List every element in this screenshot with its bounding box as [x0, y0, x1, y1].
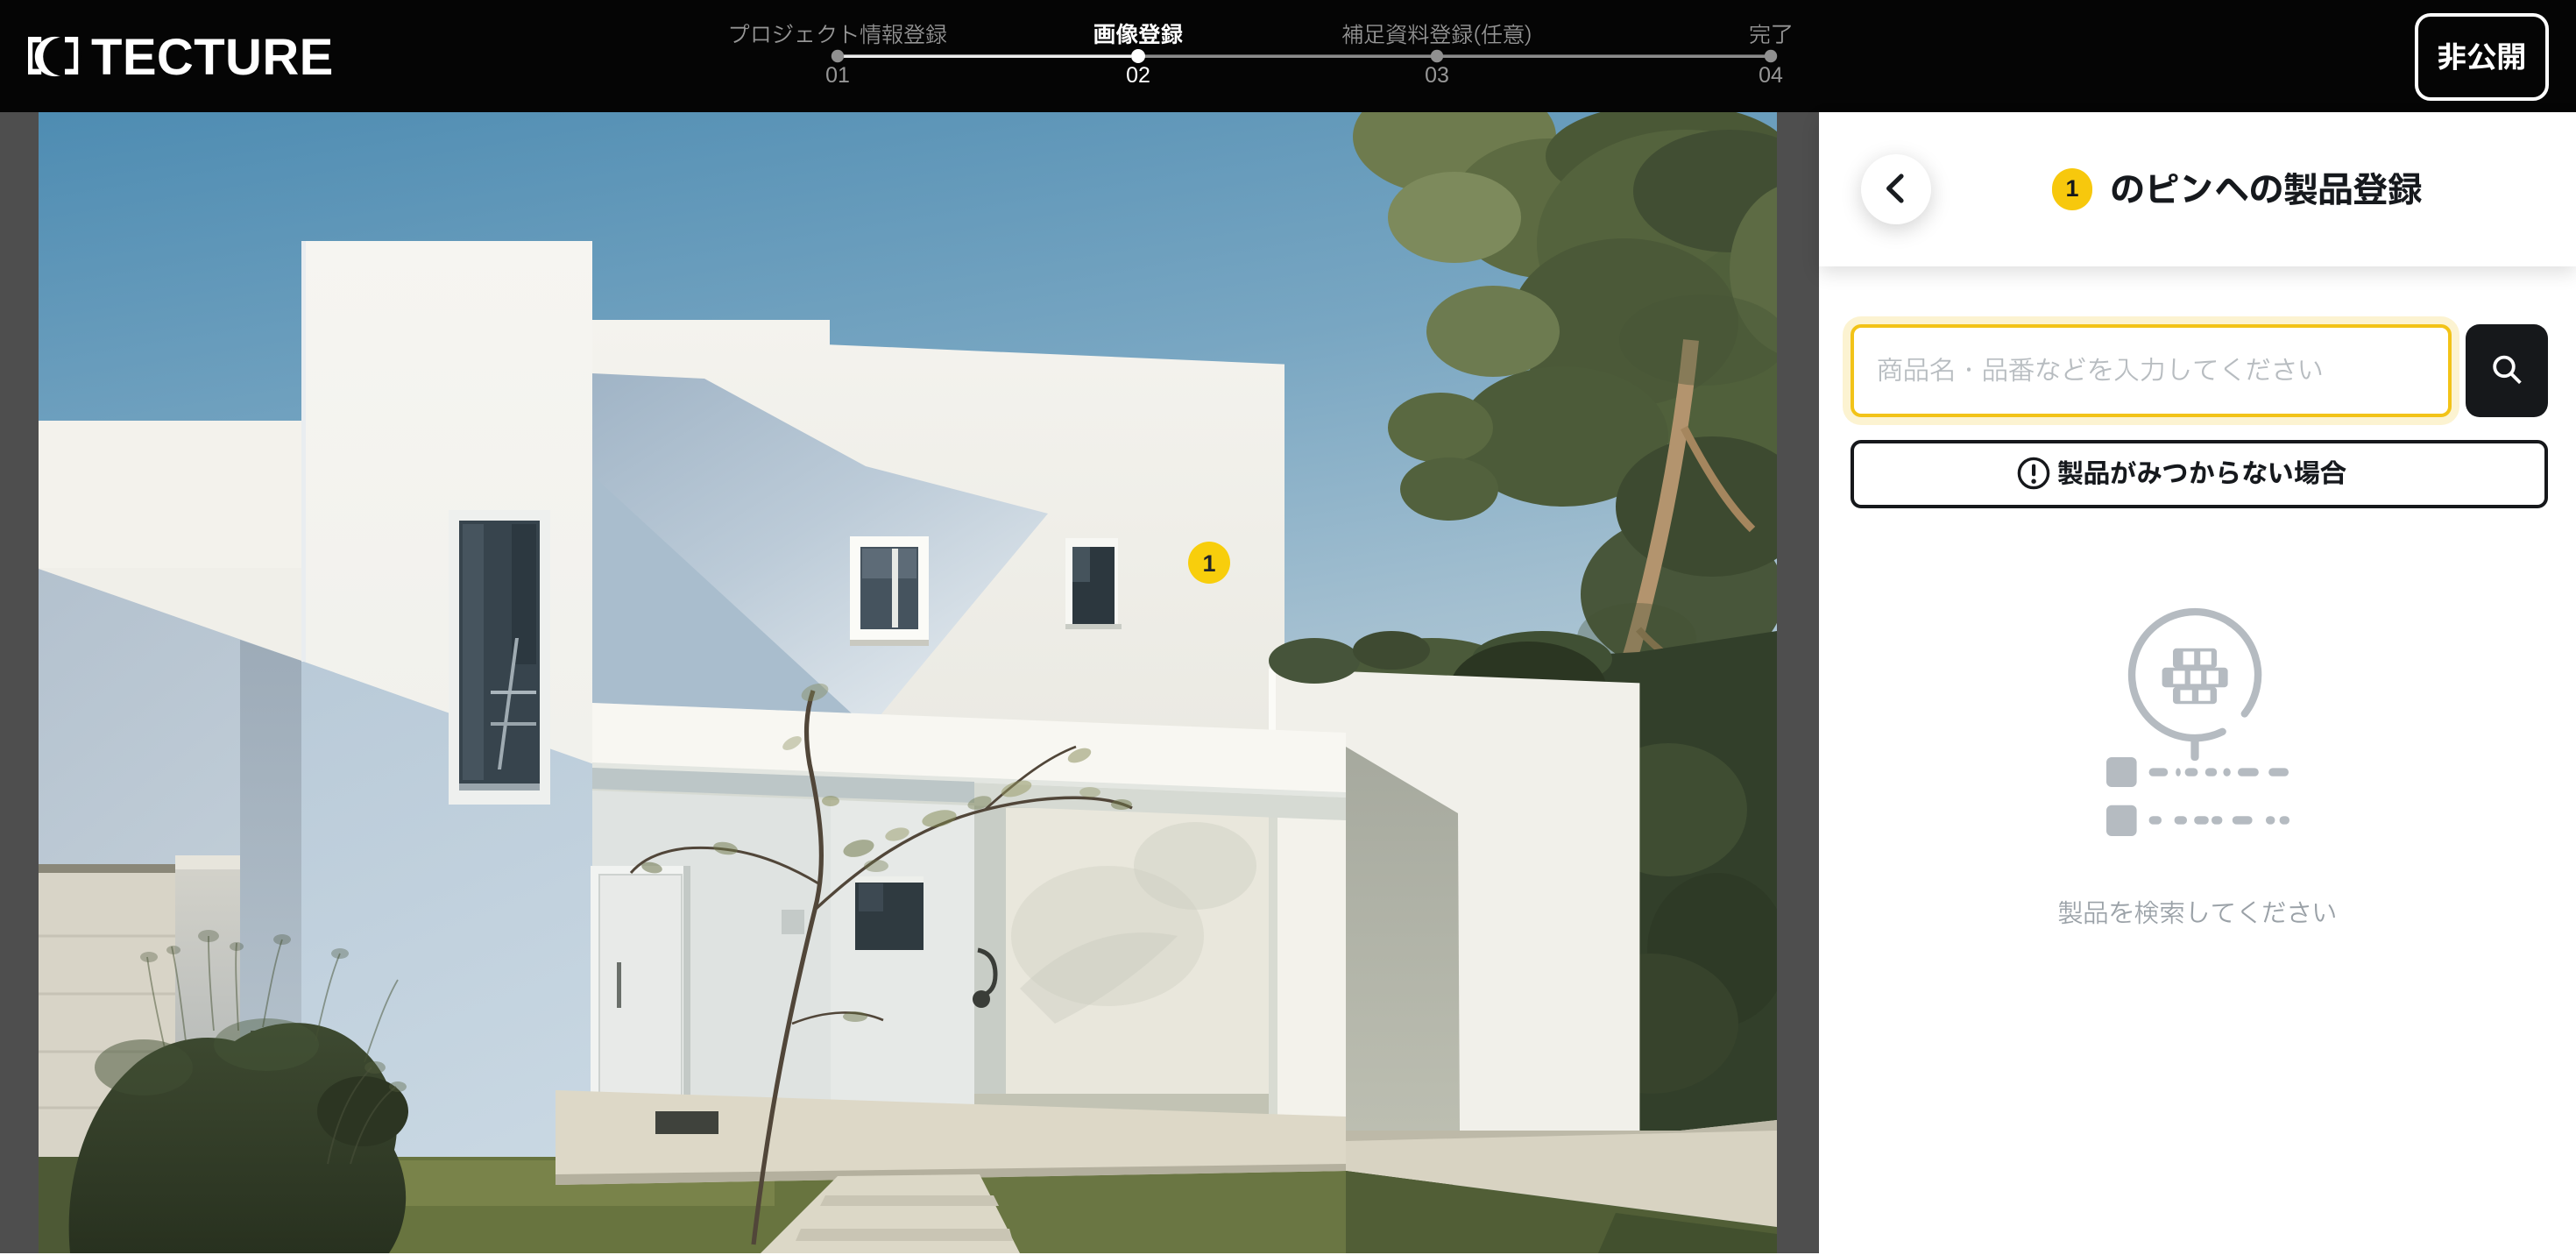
svg-text:03: 03 — [1425, 63, 1449, 88]
svg-text:02: 02 — [1126, 63, 1150, 88]
svg-text:1: 1 — [1202, 550, 1215, 577]
svg-text:04: 04 — [1759, 63, 1783, 88]
svg-text:01: 01 — [825, 63, 850, 88]
svg-text:TECTURE: TECTURE — [91, 29, 334, 86]
